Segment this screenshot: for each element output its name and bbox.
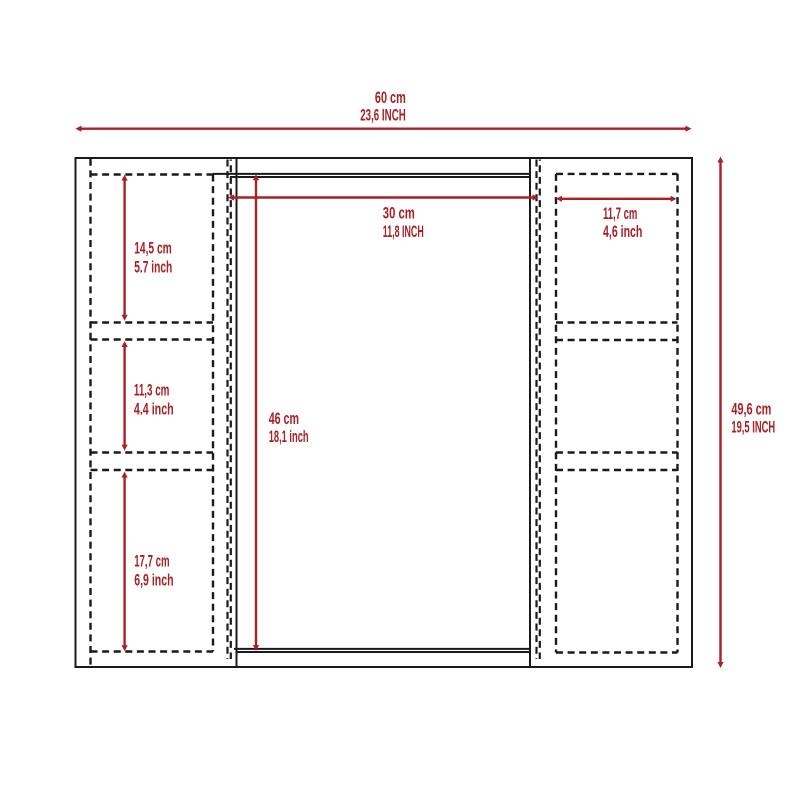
svg-text:6,9 inch: 6,9 inch — [134, 570, 173, 589]
svg-text:46 cm: 46 cm — [269, 409, 299, 428]
svg-text:30 cm: 30 cm — [383, 204, 415, 223]
svg-text:11,8 INCH: 11,8 INCH — [383, 222, 424, 241]
svg-text:11,7 cm: 11,7 cm — [603, 204, 637, 223]
svg-text:17,7 cm: 17,7 cm — [134, 551, 169, 571]
svg-text:19,5 INCH: 19,5 INCH — [731, 418, 775, 437]
svg-text:5.7 inch: 5.7 inch — [134, 257, 172, 276]
svg-text:23,6 INCH: 23,6 INCH — [360, 105, 406, 125]
svg-text:11,3 cm: 11,3 cm — [134, 380, 169, 400]
svg-text:4,6 inch: 4,6 inch — [603, 222, 642, 241]
svg-text:49,6 cm: 49,6 cm — [731, 400, 771, 419]
svg-text:14,5 cm: 14,5 cm — [134, 238, 172, 257]
svg-text:18,1 inch: 18,1 inch — [269, 427, 309, 446]
svg-text:4.4 inch: 4.4 inch — [134, 400, 174, 419]
